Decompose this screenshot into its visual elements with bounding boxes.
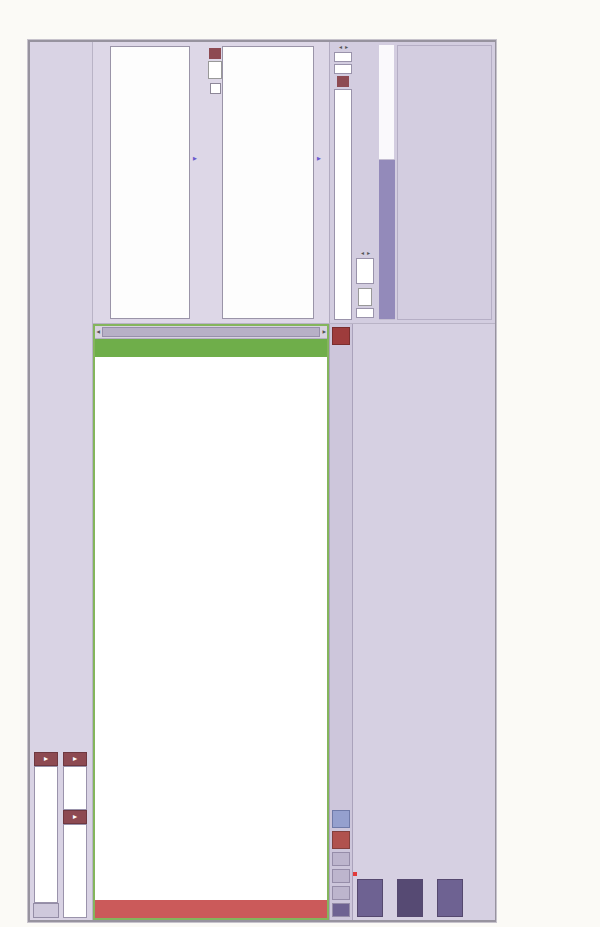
- trading-app-window: ▼ ▼ ▼ ▲: [28, 40, 496, 922]
- reset-button[interactable]: [332, 831, 350, 849]
- expiry-analysis-panel: ▲▼ ▲▼: [329, 42, 495, 323]
- pnl-chart-panel: ▾: [205, 42, 329, 323]
- month-dropdown-icon[interactable]: ▼: [63, 752, 87, 766]
- refresh-checkbox[interactable]: [210, 83, 221, 94]
- cost-highlight-annotation: [353, 872, 357, 876]
- scroll-down-icon[interactable]: ▼: [321, 329, 327, 335]
- product-dropdown-icon[interactable]: ▼: [63, 810, 87, 824]
- probability-plot: [110, 46, 190, 319]
- refresh-interval-input[interactable]: [208, 61, 222, 79]
- chain-toolbar: [329, 324, 352, 920]
- futures-equivalent-value: [379, 45, 394, 159]
- tab-strike[interactable]: [332, 886, 350, 900]
- rail-tab-positions[interactable]: [397, 879, 423, 917]
- call-banner: [95, 900, 327, 918]
- rail-tab-funds[interactable]: [437, 879, 463, 917]
- put-banner: [95, 339, 327, 357]
- instrument-selectors: ▼ ▼ ▼: [30, 750, 92, 920]
- add-underlying-button[interactable]: [332, 810, 350, 828]
- volatility-value[interactable]: [334, 51, 352, 61]
- top-quote-bar: ▼ ▼ ▼: [30, 42, 93, 920]
- analysis-mode-select[interactable]: [334, 88, 352, 319]
- refresh-apply-button[interactable]: [209, 48, 221, 59]
- refresh-control: [208, 46, 222, 94]
- positions-table-area: [353, 324, 495, 876]
- collapse-button[interactable]: [33, 903, 59, 918]
- elapsed-value-input[interactable]: [356, 258, 374, 284]
- tab-lots[interactable]: [332, 852, 350, 866]
- rotated-page: ▼ ▼ ▼ ▲: [1, 4, 599, 924]
- expiry-date-input[interactable]: [356, 308, 374, 318]
- probability-chart-panel: ▾: [93, 42, 205, 323]
- panel-rail-tabs: [353, 876, 495, 920]
- option-chain-grid: [95, 357, 327, 900]
- scroll-up-icon[interactable]: ▲: [95, 329, 101, 335]
- exchange-dropdown-icon[interactable]: ▼: [34, 752, 58, 766]
- exchange-select[interactable]: [34, 766, 58, 903]
- one-click-order-button[interactable]: [332, 327, 350, 345]
- positions-panel: [352, 324, 495, 920]
- futures-equivalent-label: [379, 159, 395, 318]
- tab-contract[interactable]: [332, 869, 350, 883]
- underlying-price-marker: ▾: [190, 156, 199, 160]
- spinner-icon[interactable]: ▲▼: [337, 45, 349, 50]
- quote-table: [30, 42, 92, 750]
- volatility-label: [334, 63, 352, 73]
- tab-analysis[interactable]: [332, 903, 350, 917]
- pnl-plot: [222, 46, 314, 319]
- month-select[interactable]: [63, 766, 87, 810]
- scroll-thumb[interactable]: [102, 327, 320, 337]
- chain-scrollbar[interactable]: ▲ ▼: [95, 326, 327, 339]
- probability-x-axis: ▾: [190, 46, 205, 319]
- product-select[interactable]: [63, 824, 87, 918]
- pnl-x-axis: ▾: [314, 46, 329, 319]
- rail-tab-orders[interactable]: [357, 879, 383, 917]
- expiry-spin-input[interactable]: [358, 288, 372, 306]
- spinner-icon[interactable]: ▲▼: [359, 251, 371, 256]
- analysis-go-button[interactable]: [337, 75, 349, 86]
- greeks-table: [397, 45, 492, 320]
- underlying-price-marker: ▾: [314, 156, 323, 160]
- option-chain-table: ▲ ▼: [93, 324, 329, 920]
